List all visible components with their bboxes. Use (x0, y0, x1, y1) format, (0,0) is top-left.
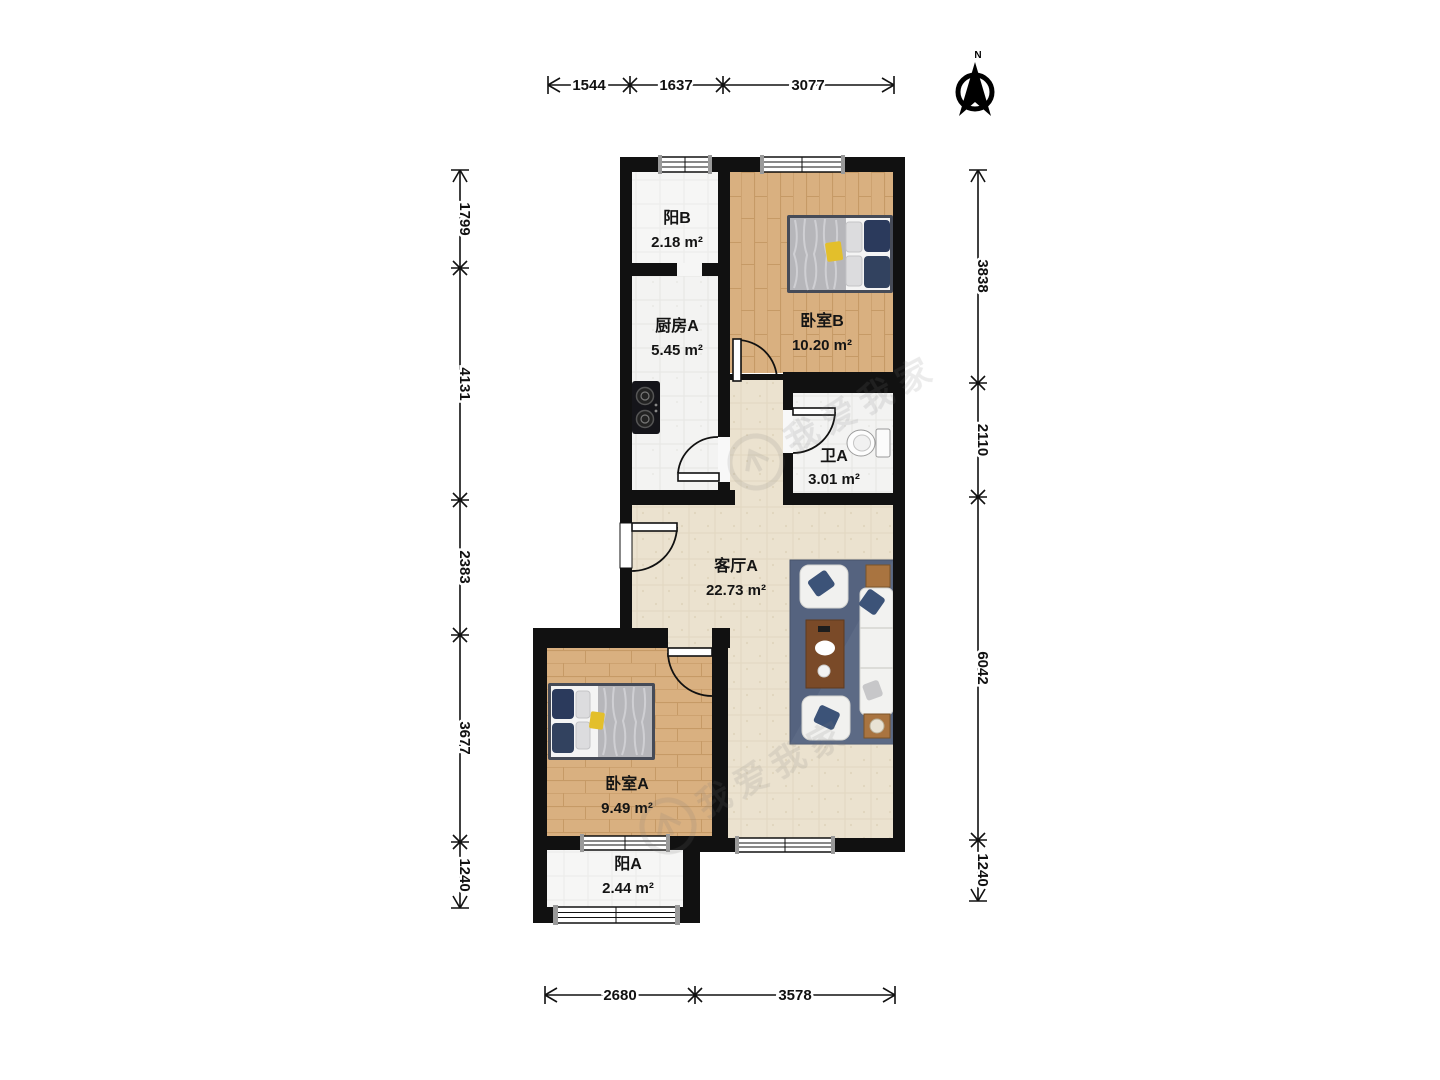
wall-segment (533, 907, 555, 923)
room-area-living-a: 22.73 m² (706, 582, 766, 599)
dim-right-1: 3838 (974, 259, 991, 292)
room-area-balcony-b: 2.18 m² (651, 234, 703, 251)
wall-segment (533, 836, 582, 850)
opening-entry (620, 523, 632, 568)
wall-segment (783, 393, 793, 410)
room-label-bedroom-b: 卧室B (800, 311, 844, 330)
wall-segment (533, 628, 668, 648)
wall-segment (620, 157, 632, 523)
window-bedroom-b (760, 155, 845, 174)
window-balcony-a (553, 905, 680, 925)
room-area-kitchen-a: 5.45 m² (651, 342, 703, 359)
room-label-bedroom-a: 卧室A (605, 774, 649, 793)
room-label-balcony-a: 阳A (614, 855, 642, 873)
room-area-bath-a: 3.01 m² (808, 471, 860, 488)
bed-bedroom-b (787, 215, 893, 293)
dim-bottom-2: 3578 (778, 987, 811, 1004)
dim-left-2: 4131 (456, 367, 473, 400)
room-area-bedroom-b: 10.20 m² (792, 337, 852, 354)
wall-segment (620, 568, 632, 628)
bed-bedroom-a (548, 683, 655, 760)
dim-right-3: 6042 (974, 651, 991, 684)
wall-segment (718, 157, 730, 437)
room-label-kitchen-a: 厨房A (655, 316, 699, 335)
floor-plan-image: 阳B 2.18 m² 厨房A 5.45 m² 卧室B 10.20 m² 卫A 3… (0, 0, 1440, 1080)
side-table (866, 565, 890, 587)
dim-top-2: 1637 (659, 77, 692, 94)
wall-segment (833, 838, 905, 852)
dim-right-2: 2110 (974, 424, 991, 457)
wall-segment (783, 493, 905, 505)
wall-segment (620, 263, 677, 276)
wall-segment (678, 907, 700, 923)
floor-plan-svg: 阳B 2.18 m² 厨房A 5.45 m² 卧室B 10.20 m² 卫A 3… (0, 0, 1440, 1080)
room-label-living-a: 客厅A (714, 556, 758, 575)
window-balcony-b (658, 155, 712, 174)
room-label-balcony-b: 阳B (663, 209, 691, 227)
dim-left-1: 1799 (456, 202, 473, 235)
dim-left-3: 2383 (456, 550, 473, 583)
room-area-balcony-a: 2.44 m² (602, 880, 654, 897)
window-living (735, 836, 835, 854)
compass-north-label: N (974, 50, 981, 61)
dim-top-1: 1544 (572, 77, 606, 94)
room-label-bath-a: 卫A (820, 448, 848, 465)
toilet-icon (847, 429, 890, 457)
dim-top-3: 3077 (791, 77, 824, 94)
dim-left-5: 1240 (456, 858, 473, 891)
wall-segment (533, 628, 547, 923)
living-room-set (790, 560, 893, 744)
dim-left-4: 3677 (456, 721, 473, 754)
dim-bottom-1: 2680 (603, 987, 636, 1004)
dim-right-4: 1240 (974, 853, 991, 886)
opening-balcony-b (677, 263, 702, 276)
stove-icon (632, 381, 660, 434)
north-compass-icon: N (958, 50, 992, 116)
wall-segment (620, 490, 735, 505)
